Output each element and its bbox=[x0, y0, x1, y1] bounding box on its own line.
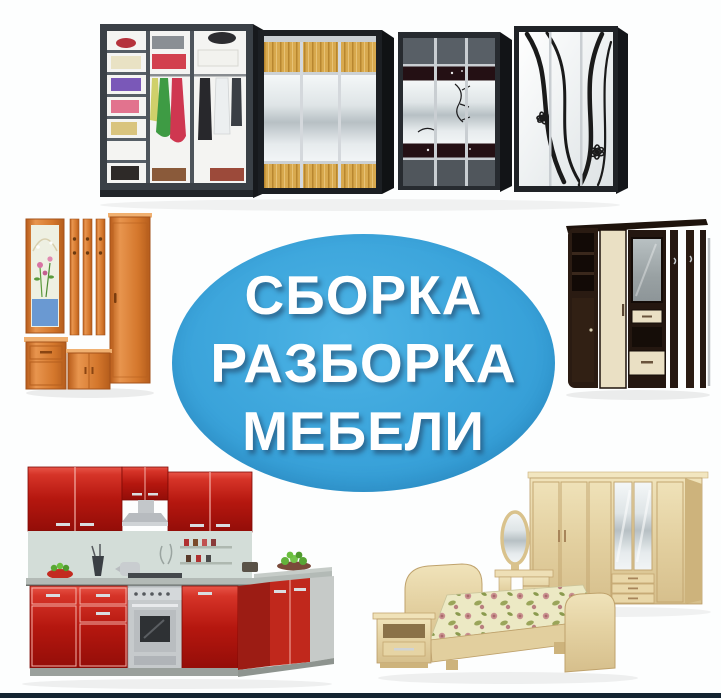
kitchen-shadow bbox=[22, 679, 332, 689]
fruit-bowl bbox=[47, 569, 73, 579]
wardrobe-floral-stripes bbox=[398, 32, 512, 192]
range-hood bbox=[122, 500, 168, 526]
coat-hook-slats bbox=[70, 219, 105, 335]
nightstand bbox=[373, 613, 435, 668]
tall-wardrobe bbox=[108, 213, 152, 383]
oven-handle bbox=[132, 604, 178, 607]
hallway-dark-photo bbox=[558, 208, 718, 403]
corner-base bbox=[182, 576, 334, 670]
footboard bbox=[565, 593, 615, 672]
bottom-bar bbox=[0, 693, 721, 698]
plinth bbox=[30, 668, 238, 676]
wardrobe-drawers bbox=[612, 574, 654, 603]
kitchen-photo bbox=[12, 450, 337, 692]
badge-line-3: МЕБЕЛИ bbox=[242, 397, 485, 465]
open-shelf bbox=[383, 624, 425, 638]
base-cabinets bbox=[30, 586, 128, 668]
stove bbox=[128, 586, 182, 673]
coat-rack-frame bbox=[670, 230, 709, 388]
cream-door bbox=[600, 230, 626, 388]
wardrobe-swirl-art bbox=[514, 26, 628, 194]
bedroom-wardrobe bbox=[528, 472, 708, 604]
spice-shelf bbox=[180, 546, 232, 549]
hallway-orange-photo bbox=[20, 205, 165, 400]
badge-line-1: СБОРКА bbox=[244, 261, 482, 329]
two-door-cabinet bbox=[66, 349, 112, 389]
low-cabinet bbox=[24, 337, 68, 389]
wardrobes-shadow bbox=[100, 199, 620, 211]
wardrobes-photo bbox=[0, 0, 721, 215]
badge-line-2: РАЗБОРКА bbox=[210, 329, 516, 397]
wardrobe-open bbox=[100, 24, 267, 198]
end-panel bbox=[310, 576, 334, 662]
wardrobe-end bbox=[685, 478, 702, 604]
wardrobe-bamboo-mirror bbox=[258, 30, 394, 194]
pot bbox=[242, 562, 258, 572]
cooktop bbox=[128, 573, 182, 578]
hallway-dark-shadow bbox=[566, 390, 710, 400]
bed-shadow bbox=[378, 672, 638, 684]
side-tower bbox=[568, 228, 598, 388]
oval-mirror bbox=[502, 512, 528, 564]
service-badge: СБОРКА РАЗБОРКА МЕБЕЛИ bbox=[172, 234, 555, 492]
framed-mirror bbox=[26, 219, 64, 333]
ad-poster: СБОРКА РАЗБОРКА МЕБЕЛИ bbox=[0, 0, 721, 700]
mirror-column bbox=[628, 230, 666, 388]
